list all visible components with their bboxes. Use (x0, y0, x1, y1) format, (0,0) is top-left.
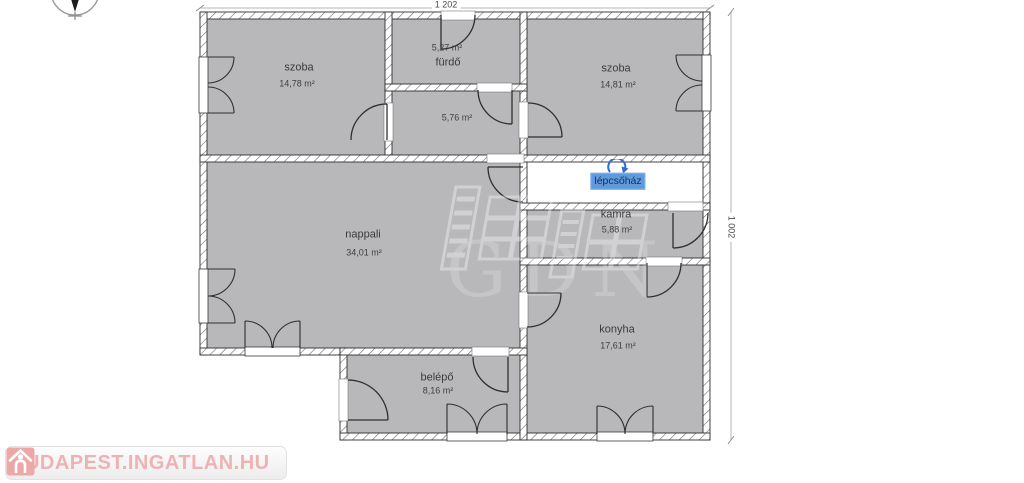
room-furdo-area: 5,27 m² (432, 44, 463, 53)
dimension-right-label: 1 002 (727, 213, 736, 242)
room-szoba-1-name[interactable]: szoba (284, 63, 313, 74)
room-kamra-name[interactable]: kamra (601, 210, 632, 221)
watermark-text: GDN (446, 225, 670, 314)
room-nappali-area: 34,01 m² (346, 249, 382, 258)
room-belepo-area: 8,16 m² (423, 387, 454, 396)
room-konyha-name[interactable]: konyha (599, 325, 634, 336)
rotate-arrow-icon[interactable] (606, 159, 630, 174)
house-icon (6, 447, 35, 476)
north-compass-icon (51, 0, 99, 20)
room-kamra-area: 5,88 m² (602, 226, 633, 235)
floorplan-canvas: GDN (0, 0, 1024, 483)
room-hall-area: 5,76 m² (442, 114, 473, 123)
room-belepo-name[interactable]: belépő (420, 373, 453, 384)
room-lepcsohaz-name-selected[interactable]: lépcsőház (590, 173, 645, 190)
floorplan-page: GDN szoba 14,78 m² 5,27 m² fürdő 5,76 m²… (0, 0, 1024, 483)
room-furdo-name[interactable]: fürdő (435, 58, 460, 69)
room-konyha-area: 17,61 m² (600, 342, 636, 351)
room-nappali-name[interactable]: nappali (345, 230, 380, 241)
room-szoba-2-area: 14,81 m² (600, 81, 636, 90)
site-logo-text: BUDAPEST.INGATLAN.HU (10, 452, 270, 475)
room-szoba-2-name[interactable]: szoba (601, 64, 630, 75)
room-szoba-1-area: 14,78 m² (279, 80, 315, 89)
dimension-top-label: 1 202 (432, 1, 461, 10)
site-logo[interactable]: BUDAPEST.INGATLAN.HU (5, 446, 287, 480)
